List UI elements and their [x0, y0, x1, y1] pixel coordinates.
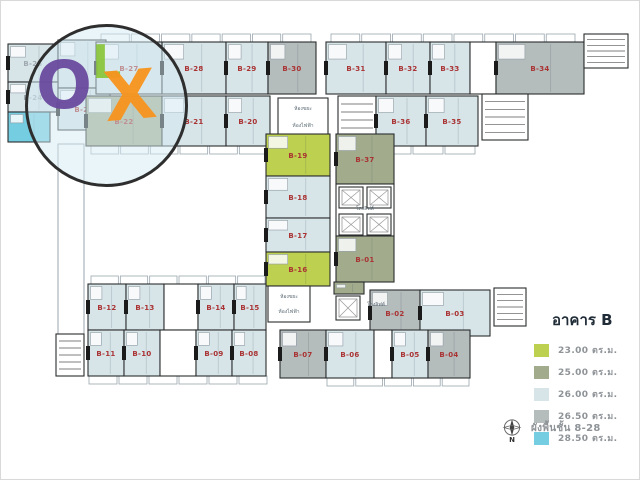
shaft-wall: [418, 306, 422, 320]
balcony: [179, 276, 206, 284]
bathroom: [329, 45, 347, 60]
balcony: [283, 34, 311, 42]
unit-label: B-17: [288, 232, 307, 240]
balcony: [192, 34, 220, 42]
bathroom: [395, 333, 406, 346]
shaft-wall: [374, 114, 378, 128]
balcony: [252, 34, 280, 42]
balcony: [239, 376, 267, 384]
bathroom: [199, 333, 210, 346]
legend-item: 25.00 ตร.ม.: [534, 361, 638, 383]
caption-text: ผังพื้นชั้น 8-28: [531, 421, 601, 436]
unit-label: B-11: [96, 350, 115, 358]
bathroom: [229, 99, 242, 113]
service-room: [470, 42, 496, 94]
bathroom: [201, 287, 212, 300]
balcony: [413, 378, 440, 386]
legend-title: อาคาร B: [534, 308, 638, 332]
balcony: [149, 376, 177, 384]
unit-label: B-02: [385, 310, 404, 318]
bathroom: [283, 333, 297, 346]
room-label: ห้องไฟฟ้า: [292, 122, 313, 129]
shaft-wall: [426, 347, 430, 361]
bathroom: [433, 45, 445, 60]
shaft-wall: [494, 61, 498, 75]
shaft-wall: [324, 347, 328, 361]
legend-swatch: [534, 366, 549, 379]
balcony: [327, 378, 354, 386]
unit-label: B-19: [288, 152, 307, 160]
unit-label: B-30: [282, 65, 301, 73]
shaft-wall: [264, 190, 268, 204]
north-compass-icon: [502, 418, 522, 437]
balcony: [150, 276, 177, 284]
balcony: [91, 276, 118, 284]
balcony: [209, 376, 237, 384]
bathroom: [235, 333, 245, 346]
bathroom: [127, 333, 138, 346]
shaft-wall: [266, 61, 270, 75]
balcony: [356, 378, 383, 386]
balcony: [362, 34, 391, 42]
balcony: [89, 376, 117, 384]
shaft-wall: [390, 347, 394, 361]
room-label: ห้องขยะ: [294, 105, 312, 112]
unit-label: B-31: [346, 65, 365, 73]
bathroom: [423, 293, 444, 306]
legend-item: 26.00 ตร.ม.: [534, 383, 638, 405]
unit-label: B-16: [288, 266, 307, 274]
legend-label: 23.00 ตร.ม.: [558, 343, 617, 357]
shaft-wall: [232, 300, 236, 314]
shaft-wall: [424, 114, 428, 128]
bathroom: [129, 287, 140, 300]
unit-label: B-03: [445, 310, 464, 318]
shaft-wall: [86, 300, 90, 314]
unit-label: B-10: [132, 350, 151, 358]
unit-label: B-08: [239, 350, 258, 358]
unit-label: B-29: [237, 65, 256, 73]
unit-label: B-28: [184, 65, 203, 73]
shaft-wall: [278, 347, 282, 361]
balcony: [210, 146, 238, 154]
bathroom: [269, 137, 288, 149]
shaft-wall: [224, 114, 228, 128]
olx-watermark: O L X: [25, 24, 188, 187]
unit-label: B-34: [530, 65, 549, 73]
balcony: [331, 34, 360, 42]
balcony: [546, 34, 575, 42]
shaft-wall: [324, 61, 328, 75]
shaft-wall: [334, 252, 338, 266]
shaft-wall: [196, 300, 200, 314]
bathroom: [269, 179, 288, 191]
bathroom: [269, 221, 288, 231]
shaft-wall: [368, 306, 372, 320]
service-room: [160, 330, 196, 376]
service-room: [164, 284, 198, 330]
balcony: [385, 378, 412, 386]
bathroom: [429, 99, 445, 113]
legend-swatch: [534, 344, 549, 357]
bathroom: [229, 45, 242, 60]
shaft-wall: [6, 90, 10, 104]
service-room: [268, 286, 310, 322]
unit-label: B-35: [442, 118, 461, 126]
room-label: โถงลิฟต์: [356, 205, 374, 212]
balcony: [119, 376, 147, 384]
unit-label: B-32: [398, 65, 417, 73]
shaft-wall: [194, 346, 198, 360]
unit-label: B-21: [184, 118, 203, 126]
plan-caption: N ผังพื้นชั้น 8-28: [502, 418, 601, 444]
unit-label: B-07: [293, 351, 312, 359]
unit-label: B-36: [391, 118, 410, 126]
bathroom: [379, 99, 394, 113]
balcony: [485, 34, 514, 42]
bathroom: [269, 255, 288, 265]
room-label: ห้องขยะ: [280, 293, 298, 300]
balcony: [454, 34, 483, 42]
bathroom: [339, 239, 356, 252]
unit-label: B-06: [340, 351, 359, 359]
legend-item: 23.00 ตร.ม.: [534, 339, 638, 361]
shaft-wall: [428, 61, 432, 75]
shaft-wall: [264, 148, 268, 162]
unit-label: B-04: [439, 351, 458, 359]
bathroom: [337, 285, 346, 288]
legend-swatch: [534, 388, 549, 401]
balcony: [423, 34, 452, 42]
room-label: ห้องไฟฟ้า: [278, 308, 299, 315]
olx-letter-x: X: [101, 61, 159, 133]
balcony: [180, 146, 208, 154]
balcony: [445, 146, 475, 154]
legend-label: 26.00 ตร.ม.: [558, 387, 617, 401]
bathroom: [431, 333, 444, 346]
shaft-wall: [264, 262, 268, 276]
unit-label: B-15: [240, 304, 259, 312]
bathroom: [91, 287, 102, 300]
room-label: โถงลิฟต์: [367, 301, 385, 308]
legend-label: 25.00 ตร.ม.: [558, 365, 617, 379]
balcony: [179, 376, 207, 384]
balcony: [208, 276, 235, 284]
shaft-wall: [124, 300, 128, 314]
shaft-wall: [224, 61, 228, 75]
bathroom: [389, 45, 402, 60]
shaft-wall: [86, 346, 90, 360]
bathroom: [339, 137, 356, 151]
bathroom: [11, 115, 24, 123]
unit-label: B-14: [206, 304, 225, 312]
shaft-wall: [334, 152, 338, 166]
bathroom: [11, 47, 26, 58]
shaft-wall: [230, 346, 234, 360]
balcony: [238, 276, 265, 284]
unit-label: B-20: [238, 118, 257, 126]
unit-label: B-05: [400, 351, 419, 359]
shaft-wall: [122, 346, 126, 360]
bathroom: [91, 333, 102, 346]
shaft-wall: [6, 56, 10, 70]
balcony: [393, 34, 422, 42]
north-compass: N: [502, 418, 522, 444]
floorplan-page: B-25B-24B-23B-27B-28B-29B-30B-31B-32B-33…: [0, 0, 640, 480]
unit-label: B-13: [135, 304, 154, 312]
unit-label: B-12: [97, 304, 116, 312]
balcony: [516, 34, 545, 42]
olx-letter-o: O: [36, 53, 90, 119]
unit-label: B-01: [355, 256, 374, 264]
balcony: [162, 34, 190, 42]
balcony: [413, 146, 443, 154]
balcony: [442, 378, 469, 386]
unit-label: B-18: [288, 194, 307, 202]
unit-label: B-09: [204, 350, 223, 358]
bathroom: [271, 45, 285, 60]
balcony: [120, 276, 147, 284]
balcony: [222, 34, 250, 42]
balcony: [239, 146, 267, 154]
shaft-wall: [384, 61, 388, 75]
shaft-wall: [264, 228, 268, 242]
service-room: [374, 330, 392, 378]
bathroom: [11, 85, 26, 93]
bathroom: [329, 333, 343, 346]
north-label: N: [509, 436, 515, 444]
bathroom: [237, 287, 247, 300]
unit-label: B-37: [355, 156, 374, 164]
unit-label: B-33: [440, 65, 459, 73]
bathroom: [499, 45, 525, 60]
